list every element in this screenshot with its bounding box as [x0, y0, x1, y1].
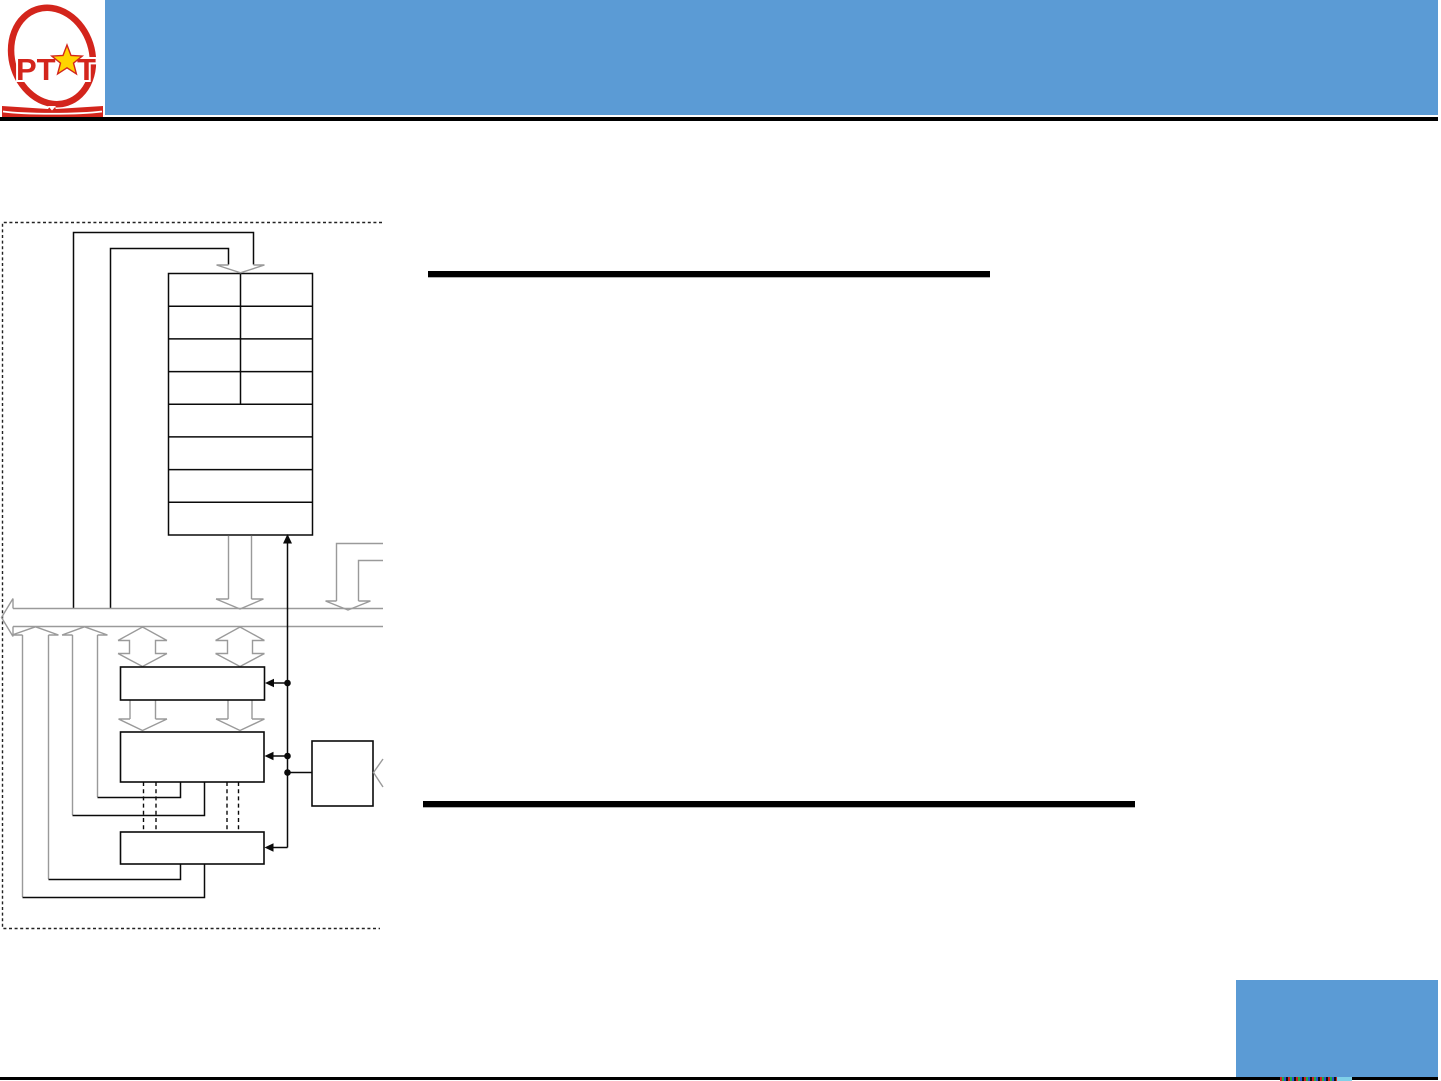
dashed-frame — [3, 223, 383, 929]
register-table — [169, 274, 313, 536]
footer-micro-text — [1280, 1077, 1337, 1081]
logo-book — [2, 104, 103, 117]
presentation-slide: PT T — [0, 0, 1441, 1081]
left-arrowhead-2 — [265, 752, 274, 760]
bus-up-channel-left — [12, 627, 59, 897]
control-line — [265, 534, 313, 852]
right-entry-arrow — [326, 544, 384, 611]
down-arrow-1 — [119, 701, 168, 731]
bus-up-channel-right — [62, 627, 108, 815]
box-3 — [121, 832, 265, 864]
table-to-bus-arrow — [216, 536, 264, 610]
dashed-connectors — [144, 782, 239, 832]
down-arrow-2 — [216, 701, 265, 731]
left-arrowhead-1 — [265, 679, 274, 687]
header-bar — [105, 0, 1438, 115]
box-2 — [121, 732, 265, 782]
junction-dot-1 — [284, 680, 291, 687]
ptit-logo: PT T — [0, 0, 105, 117]
logo-text-pt: PT — [16, 52, 56, 87]
bidirectional-arrow-1 — [118, 627, 167, 667]
clock-input-mark — [374, 759, 384, 787]
latch-box — [312, 741, 383, 806]
ptit-logo-graphic: PT T — [0, 0, 105, 122]
box-1 — [121, 667, 265, 700]
footer-accent-rect — [1236, 980, 1438, 1077]
left-arrowhead-3 — [265, 843, 274, 851]
junction-dot-3 — [284, 769, 291, 776]
heading-underline-2 — [423, 801, 1135, 808]
junction-dot-2 — [284, 753, 291, 760]
system-bus-arrow — [2, 599, 384, 637]
footer-line — [0, 1077, 1438, 1080]
footer-micro-text-tail — [1337, 1077, 1352, 1081]
header-rule — [0, 117, 1438, 121]
bidirectional-arrow-2 — [216, 627, 265, 667]
heading-underline-1 — [428, 271, 990, 278]
cpu-architecture-diagram — [0, 218, 396, 934]
